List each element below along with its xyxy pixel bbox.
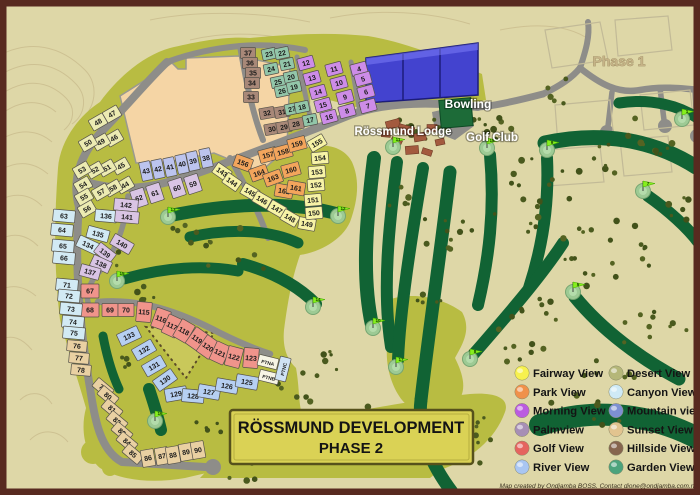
- svg-text:15: 15: [119, 271, 125, 276]
- svg-text:78: 78: [77, 367, 85, 375]
- svg-text:65: 65: [59, 243, 67, 251]
- svg-text:64: 64: [58, 227, 66, 235]
- svg-text:69: 69: [106, 308, 114, 315]
- svg-text:86: 86: [144, 455, 153, 463]
- legend-item: Palmview: [515, 422, 584, 436]
- plot-37[interactable]: 37: [241, 48, 256, 59]
- plot-32[interactable]: 32: [259, 106, 276, 119]
- plot-75[interactable]: 75: [63, 326, 86, 340]
- svg-text:89: 89: [182, 449, 191, 457]
- plot-136[interactable]: 136: [95, 209, 118, 223]
- plot-153[interactable]: 153: [308, 165, 326, 178]
- plot-17[interactable]: 17: [302, 113, 318, 127]
- svg-text:17: 17: [398, 357, 404, 362]
- svg-text:87: 87: [158, 453, 167, 461]
- plot-73[interactable]: 73: [60, 302, 83, 316]
- svg-text:88: 88: [169, 452, 178, 460]
- plot-22[interactable]: 22: [274, 46, 290, 60]
- plot-154[interactable]: 154: [311, 151, 329, 164]
- svg-text:River View: River View: [533, 462, 590, 474]
- plot-78[interactable]: 78: [71, 364, 92, 377]
- svg-text:34: 34: [248, 81, 256, 88]
- legend-item: Golf View: [515, 441, 584, 455]
- svg-text:35: 35: [249, 71, 257, 78]
- svg-text:150: 150: [308, 210, 320, 218]
- svg-text:72: 72: [65, 293, 73, 301]
- svg-text:12: 12: [340, 206, 346, 211]
- plot-18[interactable]: 18: [294, 100, 310, 114]
- plot-63[interactable]: 63: [53, 209, 76, 223]
- svg-text:141: 141: [121, 214, 133, 222]
- svg-text:28: 28: [292, 121, 301, 129]
- svg-text:Golf View: Golf View: [533, 443, 584, 455]
- svg-text:152: 152: [310, 182, 322, 190]
- plot-123[interactable]: 123: [243, 347, 260, 368]
- plot-77[interactable]: 77: [69, 352, 90, 365]
- legend-item: Sunset View: [609, 422, 693, 436]
- title-box: RÖSSMUND DEVELOPMENT PHASE 2: [230, 410, 473, 464]
- svg-text:151: 151: [307, 197, 319, 205]
- svg-text:Garden View: Garden View: [627, 462, 695, 474]
- svg-text:71: 71: [63, 282, 71, 290]
- svg-text:142: 142: [120, 202, 132, 210]
- svg-text:136: 136: [100, 213, 112, 221]
- svg-text:Morning View: Morning View: [533, 406, 606, 418]
- svg-text:74: 74: [69, 319, 77, 327]
- plot-36[interactable]: 36: [243, 58, 258, 69]
- svg-text:13: 13: [170, 207, 176, 212]
- svg-text:37: 37: [244, 51, 252, 58]
- plot-64[interactable]: 64: [51, 223, 74, 237]
- plot-90[interactable]: 90: [190, 441, 206, 460]
- plot-34[interactable]: 34: [245, 78, 260, 89]
- svg-text:7: 7: [647, 181, 650, 186]
- svg-text:Sunset View: Sunset View: [627, 424, 693, 436]
- svg-text:73: 73: [67, 306, 75, 314]
- plot-115[interactable]: 115: [136, 301, 153, 322]
- plot-68[interactable]: 68: [81, 303, 99, 317]
- title-line1: RÖSSMUND DEVELOPMENT: [238, 418, 464, 437]
- svg-text:67: 67: [86, 289, 94, 296]
- development-map: 4748464950455152534458575455564342414039…: [0, 0, 700, 495]
- plot-152[interactable]: 152: [307, 178, 325, 191]
- svg-text:5: 5: [577, 282, 580, 287]
- legend-item: Desert View: [609, 366, 691, 380]
- svg-text:1: 1: [686, 109, 689, 114]
- svg-text:Park View: Park View: [533, 387, 586, 399]
- golf-club-label: Golf Club: [466, 132, 518, 144]
- plot-141[interactable]: 141: [115, 210, 140, 224]
- plot-67[interactable]: 67: [81, 284, 99, 298]
- legend-item: Park View: [515, 385, 586, 399]
- lodge-label: Rössmund Lodge: [354, 126, 451, 138]
- plot-150[interactable]: 150: [305, 206, 323, 219]
- svg-text:33: 33: [247, 95, 255, 102]
- plot-69[interactable]: 69: [102, 304, 118, 317]
- svg-text:Mountain view: Mountain view: [627, 406, 700, 418]
- plot-19[interactable]: 19: [286, 80, 302, 94]
- plot-76[interactable]: 76: [67, 340, 88, 353]
- svg-text:8: 8: [474, 349, 477, 354]
- svg-text:90: 90: [194, 447, 203, 455]
- svg-text:30: 30: [268, 126, 277, 134]
- svg-text:66: 66: [60, 255, 68, 263]
- svg-text:16: 16: [157, 411, 163, 416]
- plot-86[interactable]: 86: [140, 449, 156, 468]
- svg-text:77: 77: [75, 355, 83, 363]
- plot-21[interactable]: 21: [279, 57, 295, 71]
- phase1-label: Phase 1: [593, 53, 646, 69]
- plot-66[interactable]: 66: [53, 251, 76, 265]
- svg-text:Fairway View: Fairway View: [533, 368, 603, 380]
- svg-text:63: 63: [60, 213, 68, 221]
- svg-text:29: 29: [280, 124, 289, 132]
- svg-text:153: 153: [311, 169, 323, 177]
- svg-text:32: 32: [263, 110, 272, 118]
- svg-text:76: 76: [73, 343, 81, 351]
- svg-text:Canyon View: Canyon View: [627, 387, 697, 399]
- plot-24[interactable]: 24: [263, 62, 279, 76]
- plot-161[interactable]: 161: [286, 180, 306, 196]
- svg-text:154: 154: [314, 155, 326, 163]
- svg-text:Palmview: Palmview: [533, 424, 584, 436]
- svg-text:115: 115: [138, 309, 150, 317]
- svg-text:123: 123: [245, 355, 257, 363]
- plot-33[interactable]: 33: [244, 92, 259, 103]
- plot-28[interactable]: 28: [288, 117, 305, 130]
- plot-72[interactable]: 72: [58, 289, 81, 303]
- svg-text:75: 75: [70, 330, 78, 338]
- svg-text:14: 14: [315, 297, 321, 302]
- plot-35[interactable]: 35: [246, 68, 261, 79]
- rossmund-map-page: 4748464950455152534458575455564342414039…: [0, 0, 700, 495]
- legend-item: River View: [515, 460, 590, 474]
- svg-text:70: 70: [122, 308, 130, 315]
- svg-text:68: 68: [86, 308, 94, 315]
- title-line2: PHASE 2: [319, 440, 383, 457]
- plot-151[interactable]: 151: [304, 193, 322, 206]
- svg-text:9: 9: [551, 140, 554, 145]
- plot-70[interactable]: 70: [118, 304, 134, 317]
- svg-text:Desert View: Desert View: [627, 368, 691, 380]
- svg-text:10: 10: [375, 318, 381, 323]
- svg-text:Hillside View: Hillside View: [627, 443, 695, 455]
- bowling-label: Bowling: [445, 97, 492, 111]
- svg-text:36: 36: [246, 61, 254, 68]
